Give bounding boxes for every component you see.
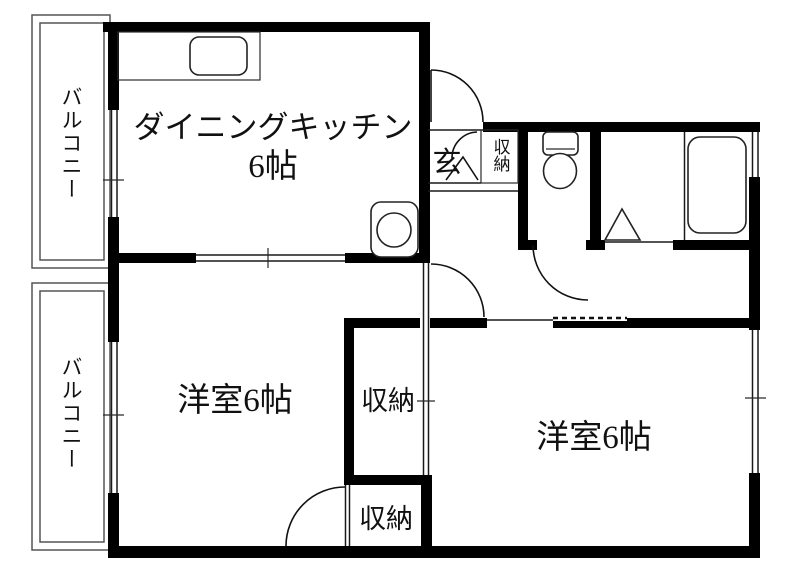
stove-unit-icon: [371, 202, 418, 257]
closet-lower-door-arc: [286, 487, 345, 546]
toilet-tank: [543, 132, 578, 155]
bathtub-icon: [688, 137, 746, 233]
balcony-top-label: バルコニー: [59, 86, 83, 201]
wall-dk-bottom-left: [108, 253, 196, 263]
front-door-arc: [431, 70, 483, 122]
wall-left-middle: [108, 217, 119, 342]
wall-closet-lower-right: [421, 475, 432, 558]
wall-sanitary-bottom-2: [586, 240, 605, 250]
wall-sanitary-bottom-3: [673, 240, 760, 250]
openings: [196, 132, 685, 546]
wall-right-middle: [749, 177, 760, 330]
kitchen-counter-sink-icon: [118, 32, 260, 80]
dining-kitchen-label: ダイニングキッチン: [134, 110, 413, 145]
floor-plan-page: バルコニー バルコニー ダイニングキッチン 6帖 洋室6帖 洋室6帖 収納 収納…: [0, 0, 800, 577]
wall-bottom: [108, 546, 760, 558]
kitchen-sink: [190, 37, 247, 75]
wall-sanitary-bottom-1: [518, 240, 537, 250]
wall-room2-top-2: [430, 318, 487, 328]
wall-closet-left: [344, 318, 354, 485]
floor-plan-svg: バルコニー バルコニー ダイニングキッチン 6帖 洋室6帖 洋室6帖 収納 収納…: [0, 0, 800, 577]
wall-toilet-right: [590, 132, 601, 250]
wall-room2-top-slider-track: [553, 321, 627, 328]
toilet-bowl: [544, 154, 577, 189]
storage-upper-label: 収納: [361, 386, 415, 416]
wall-toilet-left: [518, 125, 528, 250]
wall-right-lower: [749, 473, 760, 558]
entrance-storage-label: 収納: [491, 138, 511, 173]
dining-kitchen-size: 6帖: [248, 148, 298, 185]
wall-left-upper: [108, 22, 119, 110]
washing-machine-triangle-icon: [605, 209, 640, 240]
balcony-bottom-label: バルコニー: [59, 356, 83, 471]
wall-room2-top-1: [344, 318, 420, 328]
wall-room2-top-3: [627, 318, 760, 328]
toilet-icon: [543, 132, 578, 189]
bathtub-rect: [688, 137, 746, 233]
entrance-label: 玄: [432, 146, 461, 179]
stove-unit-burner: [377, 213, 411, 247]
hall-room-door-arc: [431, 264, 484, 317]
wall-dk-right: [419, 22, 430, 263]
western-room-left-label: 洋室6帖: [177, 382, 293, 419]
wall-dk-top: [103, 22, 430, 32]
western-room-right-label: 洋室6帖: [536, 419, 652, 456]
storage-lower-label: 収納: [359, 504, 413, 534]
wall-closet-divider: [344, 475, 432, 485]
washer-triangle: [605, 209, 640, 240]
wall-right-top-stub: [749, 122, 760, 132]
toilet-door-arc: [533, 245, 588, 300]
